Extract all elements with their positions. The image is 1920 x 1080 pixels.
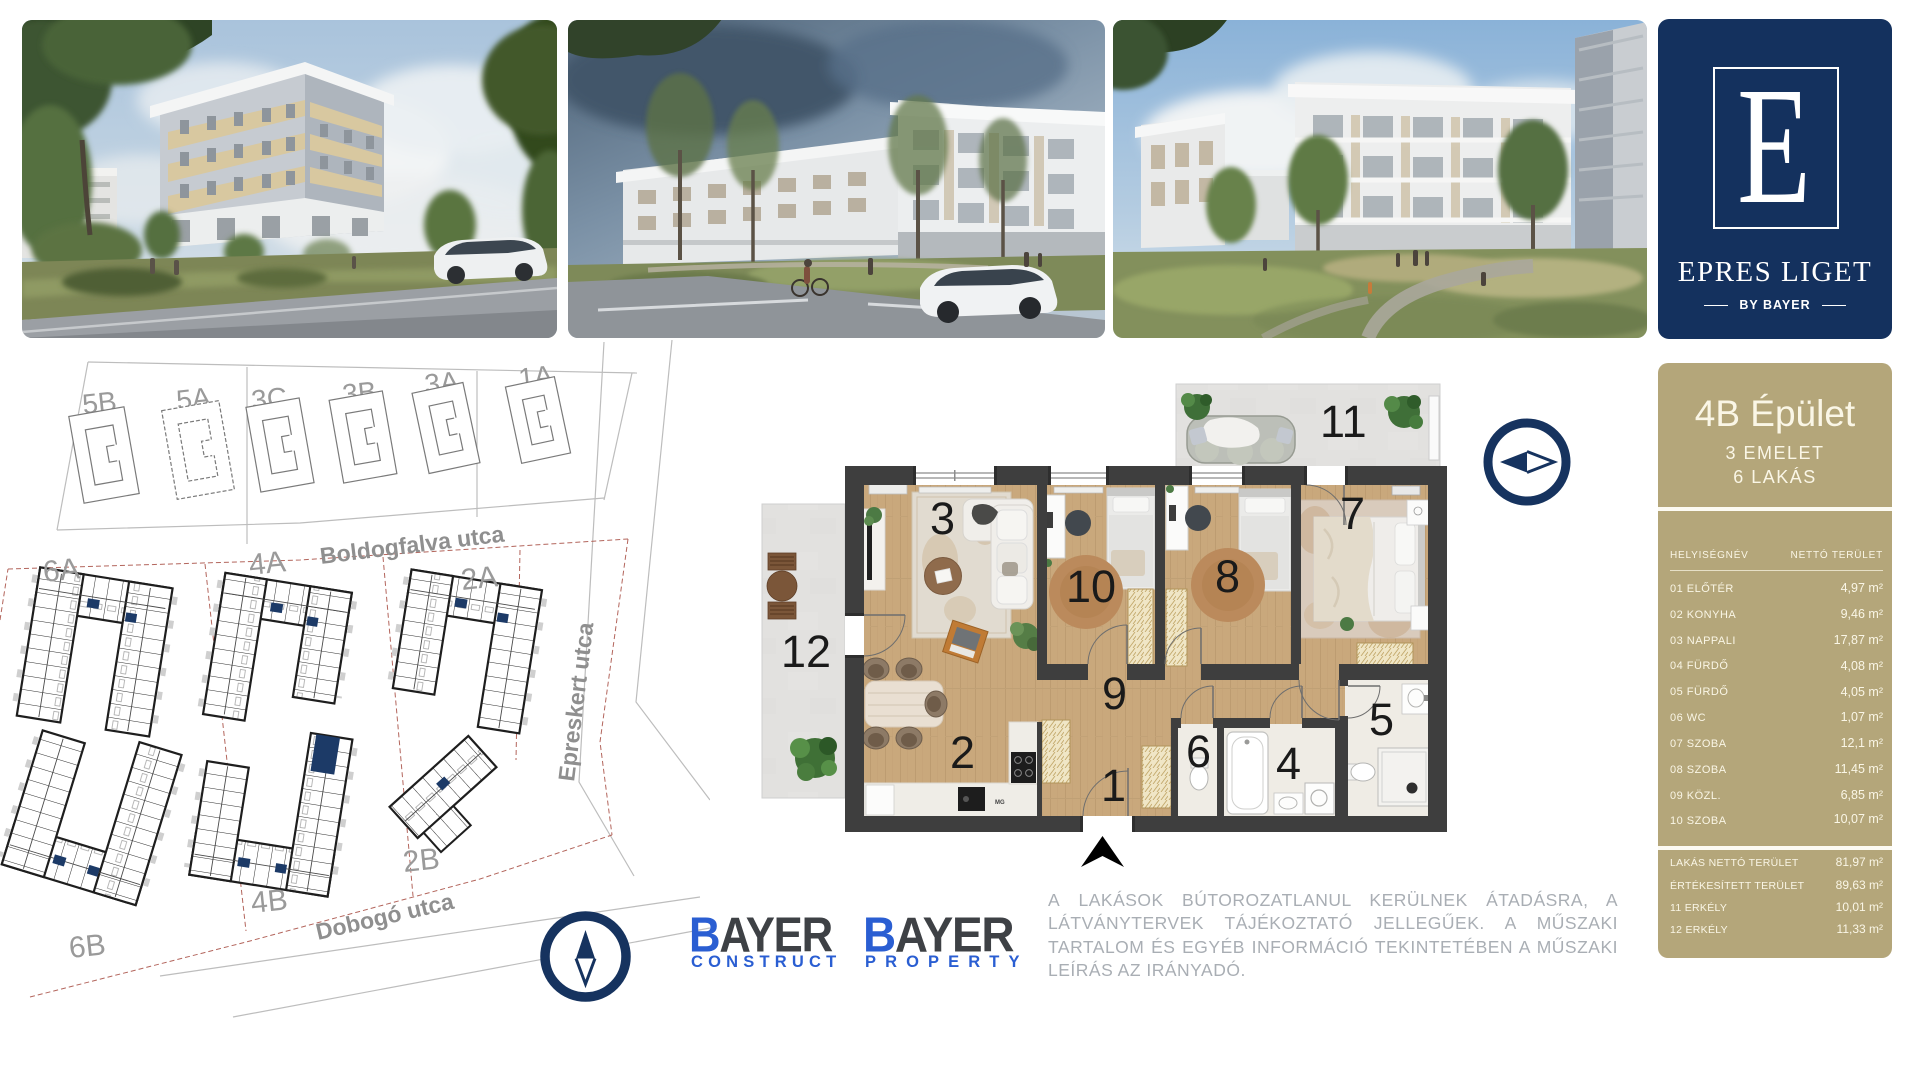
svg-text:7: 7: [1340, 488, 1365, 539]
svg-text:8: 8: [1215, 551, 1240, 602]
svg-text:4: 4: [1276, 738, 1301, 789]
svg-text:6: 6: [1186, 726, 1211, 777]
svg-text:2A: 2A: [459, 560, 499, 597]
svg-text:11: 11: [1320, 396, 1367, 447]
svg-text:4B: 4B: [249, 883, 289, 920]
svg-text:2B: 2B: [401, 842, 441, 879]
svg-text:6B: 6B: [67, 928, 107, 965]
svg-text:5: 5: [1369, 694, 1394, 745]
svg-text:6A: 6A: [41, 552, 81, 589]
svg-text:Epreskert utca: Epreskert utca: [553, 621, 598, 783]
svg-text:1: 1: [1101, 760, 1126, 811]
svg-text:12: 12: [781, 626, 831, 677]
svg-text:4A: 4A: [247, 545, 287, 582]
svg-text:10: 10: [1066, 561, 1116, 612]
svg-text:2: 2: [950, 727, 975, 778]
svg-text:MG: MG: [995, 800, 1005, 806]
svg-text:9: 9: [1102, 668, 1127, 719]
svg-text:3: 3: [930, 493, 955, 544]
